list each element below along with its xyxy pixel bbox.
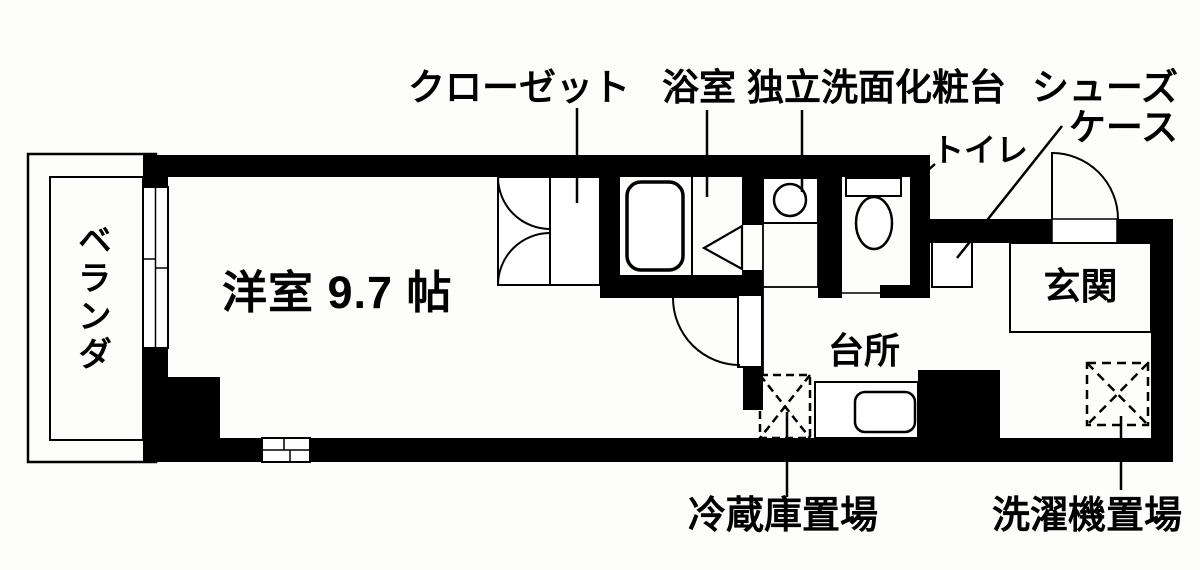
label-shoe-case-line1: シューズ bbox=[1030, 68, 1178, 108]
label-vanity: 独立洗面化粧台 bbox=[747, 68, 1006, 109]
bathroom-door bbox=[704, 226, 742, 269]
label-kitchen: 台所 bbox=[828, 331, 900, 371]
entrance-door bbox=[1052, 152, 1118, 243]
bathtub-symbol bbox=[627, 177, 692, 275]
label-toilet: トイレ bbox=[932, 133, 1028, 168]
bottom-window bbox=[262, 438, 310, 462]
label-closet: クローゼット bbox=[408, 68, 630, 109]
label-refrigerator-space: 冷蔵庫置場 bbox=[688, 496, 878, 538]
toilet-symbol bbox=[842, 178, 910, 293]
refrigerator-space-symbol bbox=[760, 375, 810, 438]
closet-symbol bbox=[498, 177, 600, 285]
shoe-case-symbol bbox=[932, 242, 972, 287]
label-bathroom: 浴室 bbox=[662, 68, 736, 109]
vanity-symbol bbox=[763, 178, 818, 375]
label-veranda: ベランダ bbox=[72, 222, 109, 374]
label-shoe-case-line2: ケース bbox=[1030, 108, 1178, 148]
label-entrance: 玄関 bbox=[1010, 267, 1151, 308]
room-door bbox=[673, 295, 762, 367]
kitchen-counter-symbol bbox=[815, 382, 918, 438]
label-main-room: 洋室 9.7 帖 bbox=[222, 268, 453, 318]
floor-plan: クローゼット 浴室 独立洗面化粧台 シューズ ケース トイレ 洋室 9.7 帖 … bbox=[0, 0, 1200, 570]
label-shoe-case: シューズ ケース bbox=[1030, 68, 1178, 148]
veranda-window bbox=[143, 187, 168, 348]
label-washing-machine-space: 洗濯機置場 bbox=[992, 496, 1182, 538]
washing-machine-space-symbol bbox=[1087, 363, 1148, 425]
